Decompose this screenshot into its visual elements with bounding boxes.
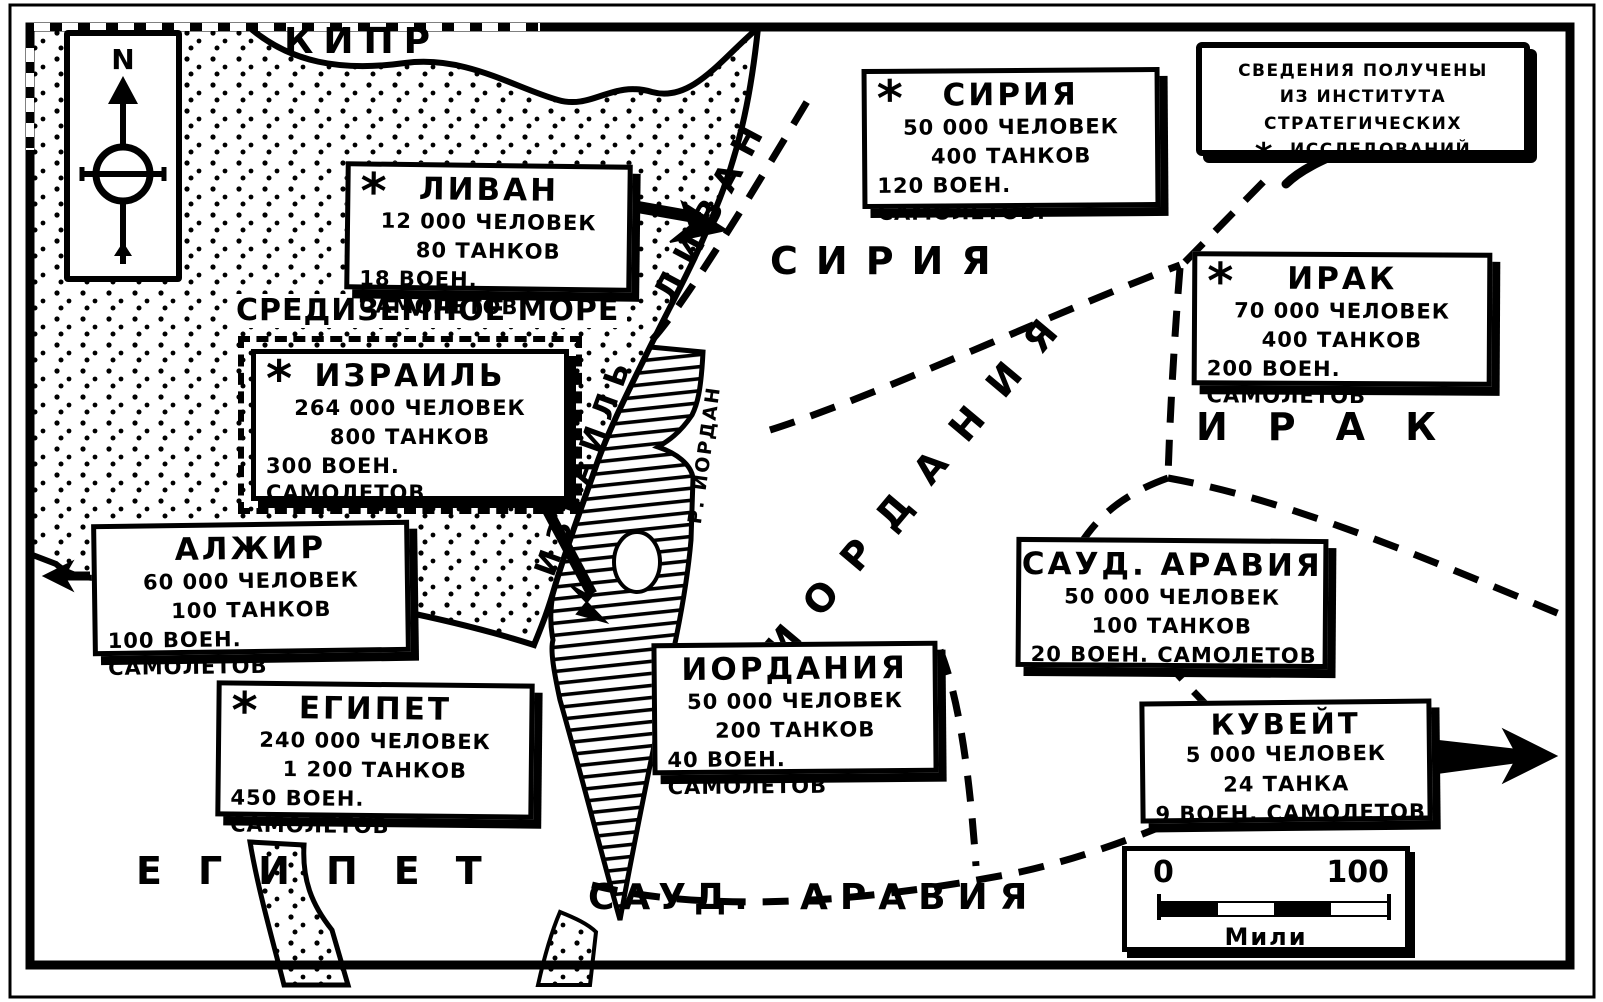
country-name: САУД. АРАВИЯ xyxy=(1021,548,1323,583)
force-box-syria: * СИРИЯ 50 000 ЧЕЛОВЕК 400 ТАНКОВ 120 ВО… xyxy=(862,67,1161,209)
asterisk-icon: * xyxy=(1255,146,1274,166)
asterisk-icon: * xyxy=(231,685,258,735)
scale-bar-box: 0 100 Мили xyxy=(1122,846,1410,952)
label-cyprus: КИПР xyxy=(284,24,440,60)
scale-segment xyxy=(1331,903,1388,915)
men-count: 60 000 ЧЕЛОВЕК xyxy=(97,565,405,597)
tank-count: 400 ТАНКОВ xyxy=(1197,326,1487,355)
label-egypt-region: ЕГИПЕТ xyxy=(136,852,518,890)
country-name: ЛИВАН xyxy=(350,172,627,208)
plane-count: 120 ВОЕН. САМОЛЕТОВ. xyxy=(867,171,1155,228)
legend-line-1: СВЕДЕНИЯ ПОЛУЧЕНЫ xyxy=(1202,58,1524,84)
men-count: 12 000 ЧЕЛОВЕК xyxy=(350,207,627,238)
map-page: КИПР СРЕДИЗЕМНОЕ МОРЕ СИРИЯ ИРАК ИОРДАНИ… xyxy=(0,0,1603,1002)
asterisk-icon: * xyxy=(1207,256,1233,306)
plane-count: 18 ВОЕН. САМОЛЕТОВ xyxy=(349,265,627,323)
force-box-iraq: * ИРАК 70 000 ЧЕЛОВЕК 400 ТАНКОВ 200 ВОЕ… xyxy=(1192,251,1493,387)
scale-start: 0 xyxy=(1153,855,1174,890)
men-count: 264 000 ЧЕЛОВЕК xyxy=(256,395,564,422)
tank-count: 100 ТАНКОВ xyxy=(1021,612,1323,641)
asterisk-icon: * xyxy=(877,74,904,124)
compass-needle-icon xyxy=(70,74,176,274)
label-saudi-region-2: АРАВИЯ xyxy=(800,880,1039,916)
men-count: 5 000 ЧЕЛОВЕК xyxy=(1145,740,1427,770)
dead-sea xyxy=(614,532,660,592)
compass-rose: N xyxy=(64,30,182,282)
plane-count: 300 ВОЕН. САМОЛЕТОВ xyxy=(256,453,564,508)
plane-count: 9 ВОЕН. САМОЛЕТОВ xyxy=(1145,799,1427,829)
label-syria-region: СИРИЯ xyxy=(770,242,1009,280)
tank-count: 1 200 ТАНКОВ xyxy=(221,755,529,786)
force-box-algeria: АЛЖИР 60 000 ЧЕЛОВЕК 100 ТАНКОВ 100 ВОЕН… xyxy=(91,520,411,656)
legend-line-2: ИЗ ИНСТИТУТА СТРАТЕГИЧЕСКИХ xyxy=(1202,84,1524,137)
scale-segment xyxy=(1274,903,1331,915)
country-name: ЕГИПЕТ xyxy=(221,691,529,727)
force-box-egypt: * ЕГИПЕТ 240 000 ЧЕЛОВЕК 1 200 ТАНКОВ 45… xyxy=(215,680,534,819)
country-name: ИОРДАНИЯ xyxy=(657,652,933,687)
plane-count: 200 ВОЕН. САМОЛЕТОВ xyxy=(1197,355,1487,411)
plane-count: 40 ВОЕН. САМОЛЕТОВ xyxy=(657,745,933,802)
scale-unit-label: Мили xyxy=(1127,923,1405,951)
scale-end: 100 xyxy=(1326,855,1389,890)
compass-north-label: N xyxy=(70,46,176,74)
country-name: СИРИЯ xyxy=(867,78,1155,113)
label-iraq-region: ИРАК xyxy=(1196,408,1476,446)
country-name: ИЗРАИЛЬ xyxy=(256,360,564,393)
tank-count: 200 ТАНКОВ xyxy=(657,716,933,746)
scale-bar xyxy=(1159,901,1389,917)
tank-count: 100 ТАНКОВ xyxy=(97,595,405,627)
scale-segment xyxy=(1161,903,1218,915)
tank-count: 24 ТАНКА xyxy=(1145,769,1427,799)
gulf-of-suez xyxy=(538,912,596,985)
asterisk-icon: * xyxy=(360,166,387,216)
men-count: 50 000 ЧЕЛОВЕК xyxy=(867,113,1155,142)
country-name: АЛЖИР xyxy=(96,531,404,568)
tank-count: 400 ТАНКОВ xyxy=(867,142,1155,171)
legend-source-box: СВЕДЕНИЯ ПОЛУЧЕНЫ ИЗ ИНСТИТУТА СТРАТЕГИЧ… xyxy=(1196,42,1530,156)
country-name: КУВЕЙТ xyxy=(1144,708,1426,741)
men-count: 240 000 ЧЕЛОВЕК xyxy=(221,726,529,757)
plane-count: 20 ВОЕН. САМОЛЕТОВ xyxy=(1021,641,1323,670)
scale-segment xyxy=(1218,903,1275,915)
men-count: 70 000 ЧЕЛОВЕК xyxy=(1197,297,1487,326)
legend-line-3: ИССЛЕДОВАНИЙ xyxy=(1290,137,1471,163)
israel-dashed-frame: * ИЗРАИЛЬ 264 000 ЧЕЛОВЕК 800 ТАНКОВ 300… xyxy=(238,336,582,514)
asterisk-icon: * xyxy=(266,354,292,404)
force-box-lebanon: * ЛИВАН 12 000 ЧЕЛОВЕК 80 ТАНКОВ 18 ВОЕН… xyxy=(344,161,633,292)
men-count: 50 000 ЧЕЛОВЕК xyxy=(657,686,933,716)
scale-tick-right xyxy=(1387,894,1391,920)
force-box-kuwait: КУВЕЙТ 5 000 ЧЕЛОВЕК 24 ТАНКА 9 ВОЕН. СА… xyxy=(1139,698,1432,823)
label-saudi-region-1: САУД. xyxy=(588,880,756,916)
men-count: 50 000 ЧЕЛОВЕК xyxy=(1021,582,1323,611)
tank-count: 800 ТАНКОВ xyxy=(256,424,564,451)
tank-count: 80 ТАНКОВ xyxy=(350,236,627,267)
force-box-jordan: ИОРДАНИЯ 50 000 ЧЕЛОВЕК 200 ТАНКОВ 40 ВО… xyxy=(651,641,938,775)
force-box-israel: * ИЗРАИЛЬ 264 000 ЧЕЛОВЕК 800 ТАНКОВ 300… xyxy=(251,349,569,501)
force-box-saudi-arabia: САУД. АРАВИЯ 50 000 ЧЕЛОВЕК 100 ТАНКОВ 2… xyxy=(1016,537,1329,669)
plane-count: 100 ВОЕН. САМОЛЕТОВ xyxy=(98,624,407,683)
plane-count: 450 ВОЕН. САМОЛЕТОВ xyxy=(220,785,529,843)
country-name: ИРАК xyxy=(1197,262,1487,296)
scale-tick-left xyxy=(1157,894,1161,920)
